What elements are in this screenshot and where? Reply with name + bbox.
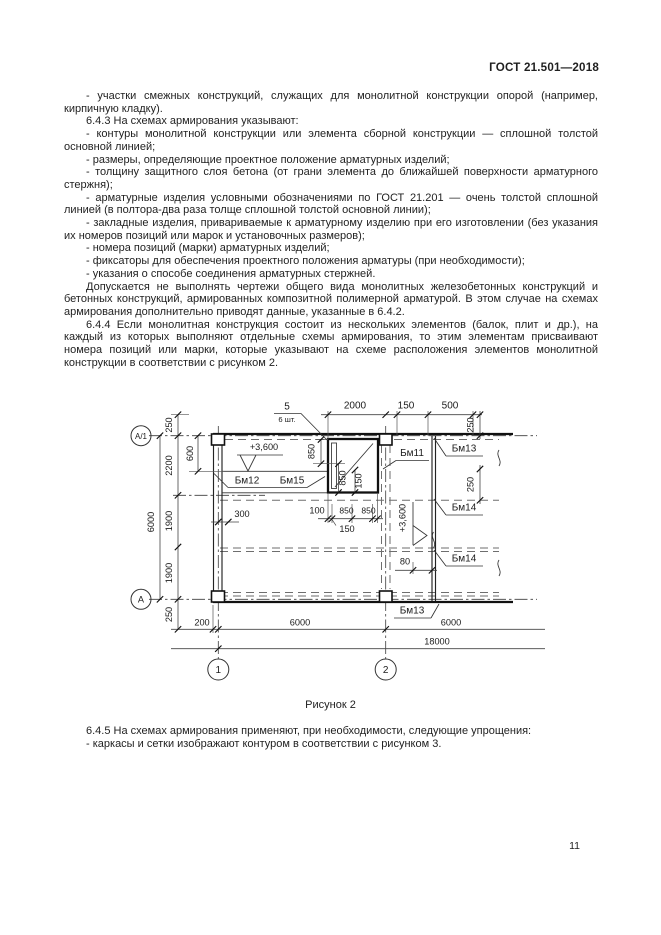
dim-150-inner: 150: [354, 473, 364, 488]
dim-850-a: 850: [339, 506, 353, 516]
hidden-beam-edges: [220, 440, 499, 597]
dim-500: 500: [442, 401, 459, 412]
paragraph: - указания о способе соединения арматурн…: [64, 268, 598, 281]
elevation-top: +3,600: [250, 442, 278, 452]
paragraph: - каркасы и сетки изображают контуром в …: [64, 738, 598, 751]
column-mark: [212, 591, 225, 602]
paragraph: 6.4.4 Если монолитная конструкция состои…: [64, 319, 598, 370]
dim-300: 300: [234, 509, 249, 519]
dim-250-top-right: 250: [466, 417, 476, 432]
dim-6000-bay2: 6000: [441, 618, 461, 628]
beam-label-bm12: Бм12: [235, 476, 260, 487]
paragraph: 6.4.5 На схемах армирования применяют, п…: [64, 725, 598, 738]
beam-label-bm11: Бм11: [400, 448, 424, 459]
paragraph: - размеры, определяющие проектное положе…: [64, 154, 598, 167]
elevation-middle: +3,600: [398, 504, 408, 532]
dim-6000-left: 6000: [146, 512, 156, 532]
body-text-after-figure: 6.4.5 На схемах армирования применяют, п…: [64, 725, 598, 750]
dim-200: 200: [194, 618, 209, 628]
dim-150-below: 150: [339, 524, 354, 534]
beam-label-bm13-bottom: Бм13: [400, 606, 425, 617]
dim-850-inner: 850: [338, 470, 348, 485]
body-text: - участки смежных конструкций, служащих …: [64, 90, 598, 369]
paragraph: - толщину защитного слоя бетона (от гран…: [64, 166, 598, 191]
beam-label-bm15: Бм15: [280, 476, 305, 487]
position-count: 6 шт.: [278, 415, 295, 424]
dim-2000: 2000: [344, 401, 367, 412]
dimension-labels: 2000 150 500 250 250 2200 600 6000 1900 …: [146, 401, 476, 647]
position-callout: 5 6 шт.: [278, 402, 295, 425]
dim-600: 600: [185, 446, 195, 461]
paragraph: - номера позиций (марки) арматурных изде…: [64, 242, 598, 255]
figure-2: А/1 А 1 2 5 6 шт. Бм11 Бм12 Бм15 Бм13 Бм…: [125, 392, 555, 692]
dim-80: 80: [400, 557, 410, 567]
grid-label-a1: А/1: [135, 432, 148, 441]
figure-caption: Рисунок 2: [0, 699, 661, 711]
paragraph: - участки смежных конструкций, служащих …: [64, 90, 598, 115]
beam-label-bm14-upper: Бм14: [452, 503, 477, 514]
paragraph: 6.4.3 На схемах армирования указывают:: [64, 115, 598, 128]
column-mark: [380, 591, 393, 602]
page-number: 11: [569, 840, 580, 852]
beam-label-bm14-lower: Бм14: [452, 554, 477, 565]
grid-label-2: 2: [383, 665, 389, 676]
grid-label-1: 1: [216, 665, 222, 676]
dim-18000: 18000: [424, 637, 450, 647]
figure-2-drawing: А/1 А 1 2 5 6 шт. Бм11 Бм12 Бм15 Бм13 Бм…: [125, 392, 555, 692]
position-number: 5: [284, 402, 290, 413]
paragraph: - контуры монолитной конструкции или эле…: [64, 128, 598, 153]
dim-850-left: 850: [307, 444, 317, 459]
dim-250-top-left: 250: [164, 417, 174, 432]
grid-label-a: А: [138, 595, 145, 605]
document-header: ГОСТ 21.501—2018: [64, 61, 599, 74]
structure-outlines: [212, 433, 514, 603]
document-page: ГОСТ 21.501—2018 - участки смежных конст…: [0, 0, 661, 935]
paragraph: - закладные изделия, привариваемые к арм…: [64, 217, 598, 242]
dim-250-bottom-left: 250: [164, 607, 174, 622]
dim-100: 100: [309, 506, 324, 516]
dim-850-b: 850: [361, 506, 375, 516]
dim-2200: 2200: [164, 455, 174, 475]
paragraph: Допускается не выполнять чертежи общего …: [64, 281, 598, 319]
paragraph: - фиксаторы для обеспечения проектного п…: [64, 255, 598, 268]
column-mark: [380, 434, 393, 445]
dim-150-top: 150: [398, 401, 415, 412]
dim-1900-lower: 1900: [164, 563, 174, 583]
dim-6000-bay1: 6000: [290, 618, 310, 628]
column-mark: [212, 434, 225, 445]
dim-250-right: 250: [466, 477, 476, 492]
beam-label-bm13-top: Бм13: [452, 444, 477, 455]
paragraph: - арматурные изделия условными обозначен…: [64, 192, 598, 217]
dim-1900-upper: 1900: [164, 511, 174, 531]
